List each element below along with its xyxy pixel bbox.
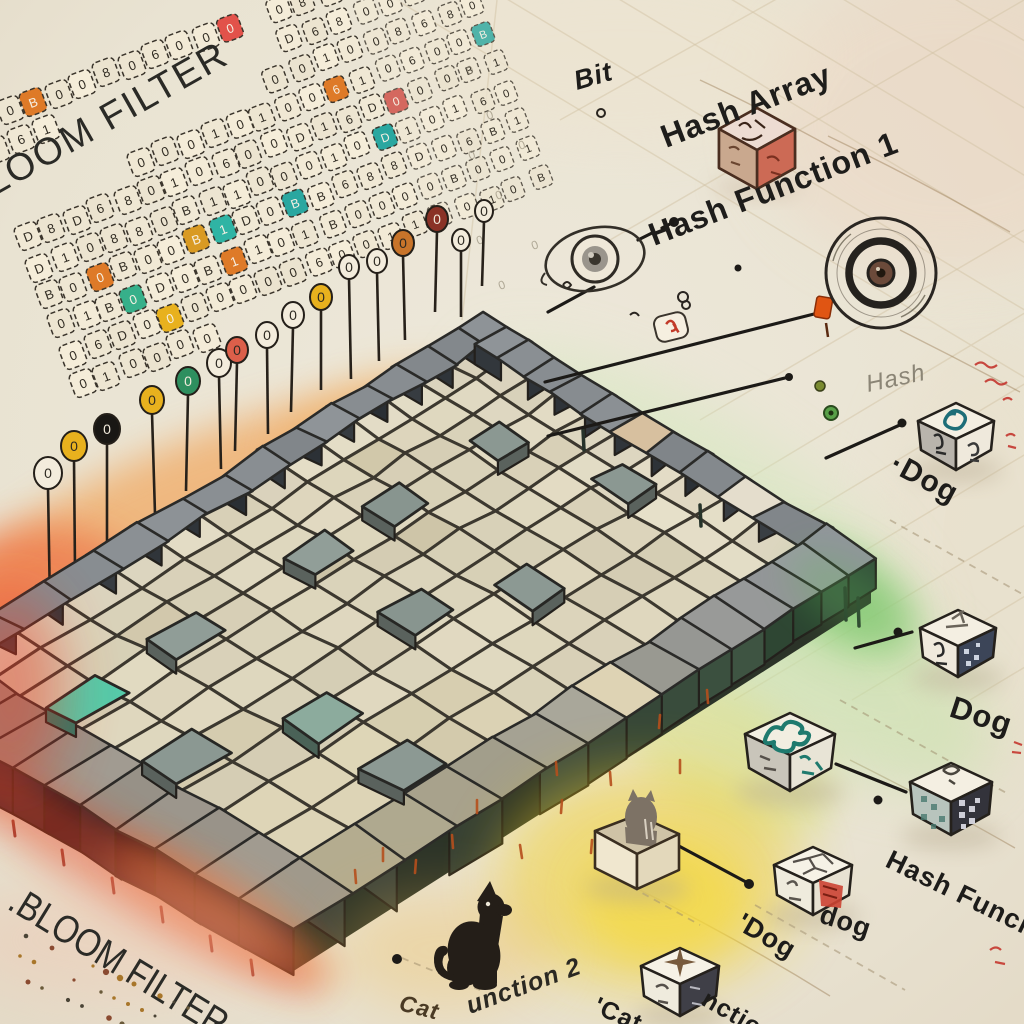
svg-text:0: 0: [345, 259, 353, 275]
svg-text:0: 0: [317, 289, 325, 305]
svg-text:0: 0: [215, 355, 223, 371]
svg-text:0: 0: [263, 327, 271, 343]
svg-text:0: 0: [433, 211, 441, 227]
svg-text:0: 0: [233, 342, 241, 358]
svg-text:0: 0: [289, 307, 297, 323]
svg-text:0: 0: [184, 373, 192, 389]
svg-text:0: 0: [399, 235, 407, 251]
svg-text:0: 0: [70, 438, 78, 454]
svg-text:0: 0: [457, 232, 465, 248]
svg-text:0: 0: [44, 465, 52, 481]
svg-text:0: 0: [373, 253, 381, 269]
svg-text:0: 0: [103, 421, 111, 437]
svg-text:0: 0: [148, 392, 156, 408]
svg-text:0: 0: [480, 203, 488, 219]
